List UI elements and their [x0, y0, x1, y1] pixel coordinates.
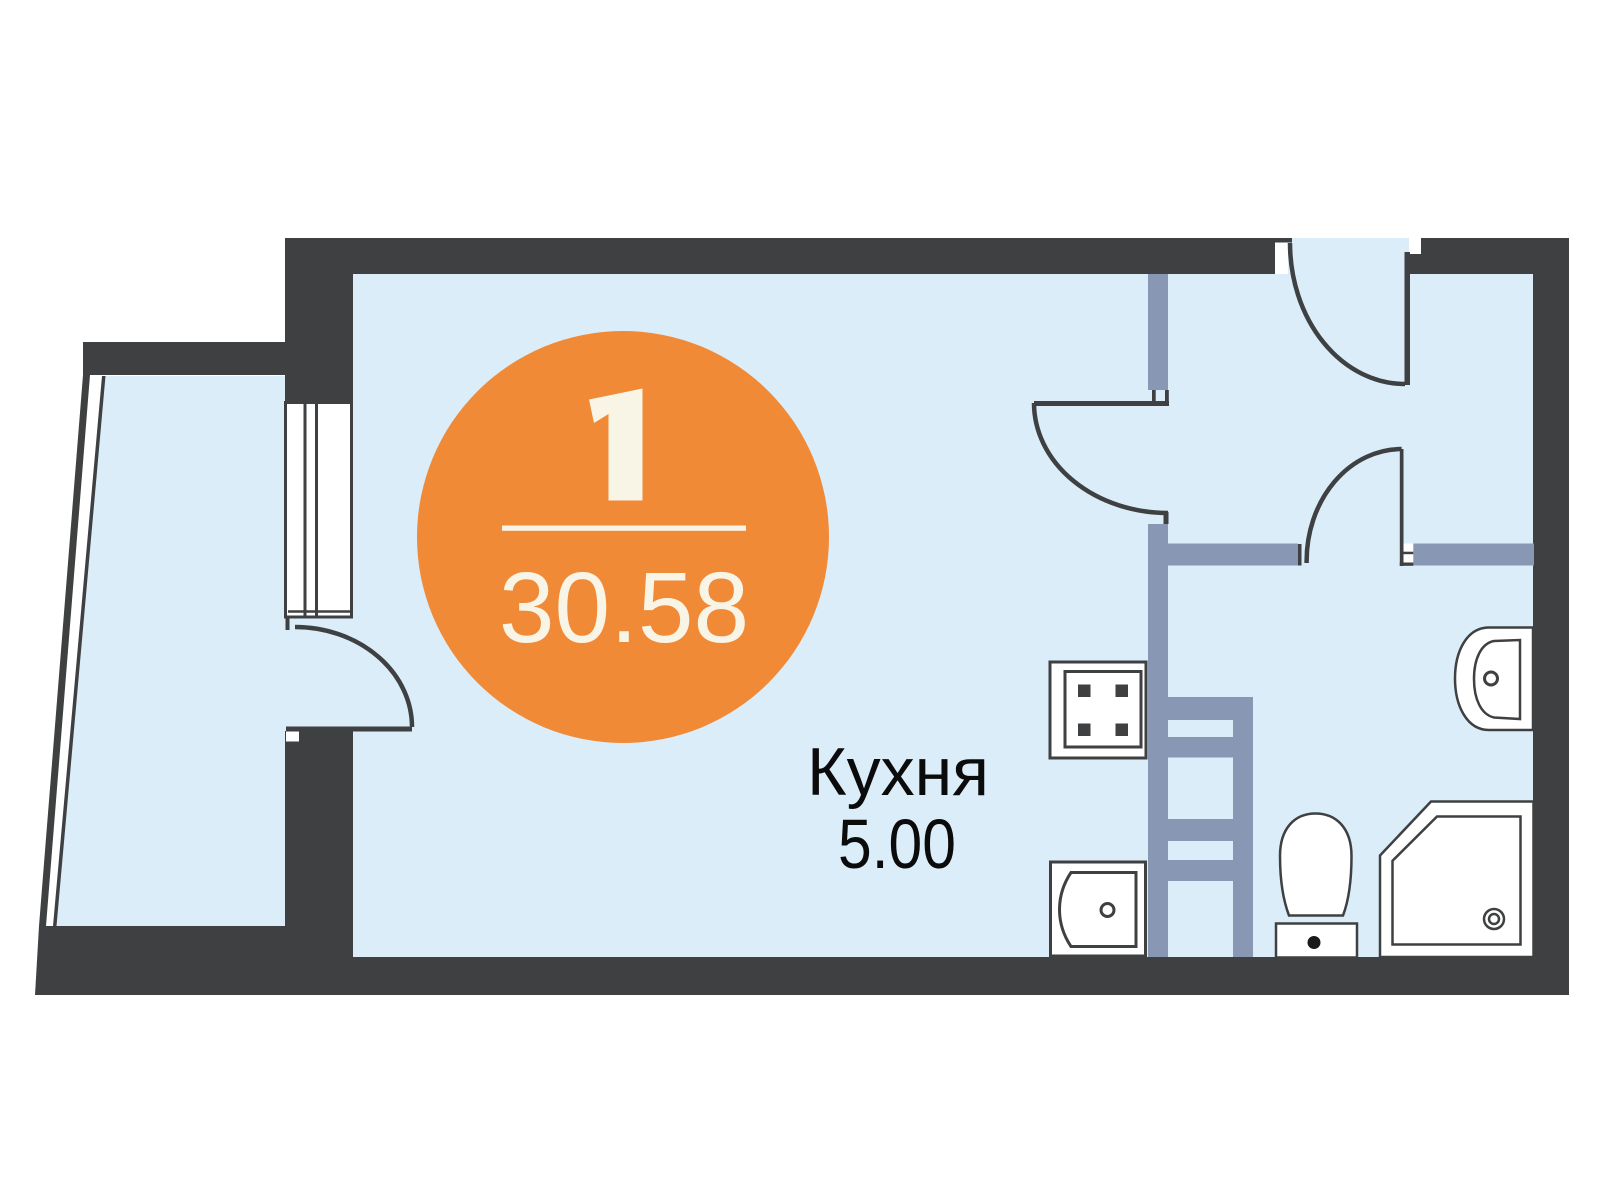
svg-text:Кухня: Кухня — [807, 734, 989, 810]
svg-text:5.00: 5.00 — [838, 805, 956, 883]
svg-text:30.58: 30.58 — [499, 552, 749, 664]
